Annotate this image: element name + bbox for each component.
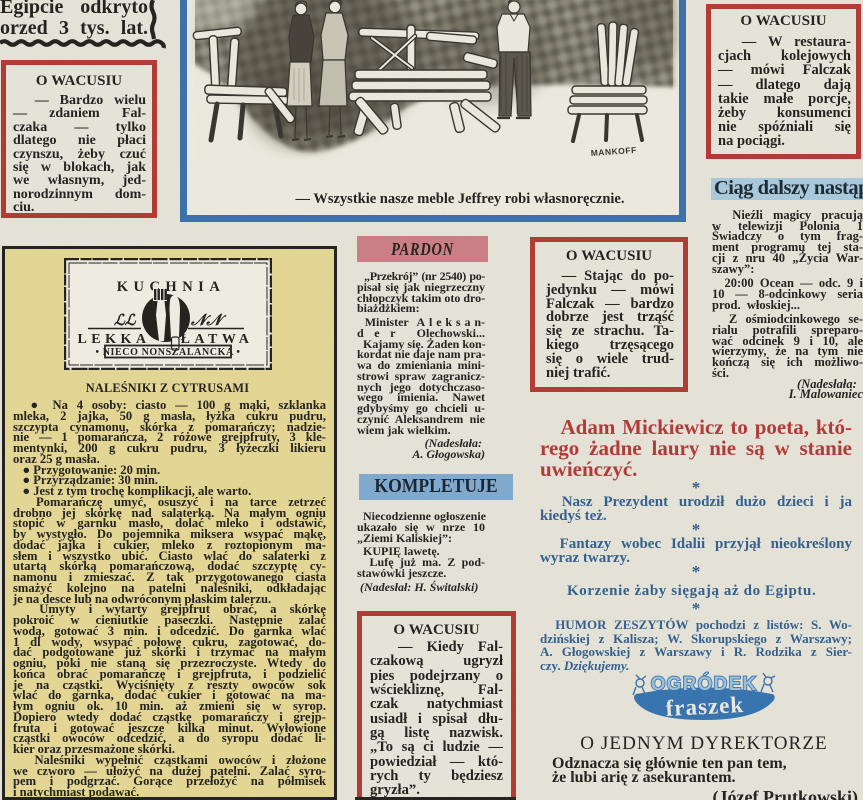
svg-text:fraszek: fraszek [665,692,745,721]
svg-text:ℒℒ: ℒℒ [114,313,137,329]
svg-text:• NIECO NONSZALANCKA •: • NIECO NONSZALANCKA • [96,347,241,358]
svg-text:MANKOFF: MANKOFF [590,145,637,158]
svg-text:KUCHNIA: KUCHNIA [117,279,226,295]
svg-text:OGRÓDEK: OGRÓDEK [651,673,758,695]
